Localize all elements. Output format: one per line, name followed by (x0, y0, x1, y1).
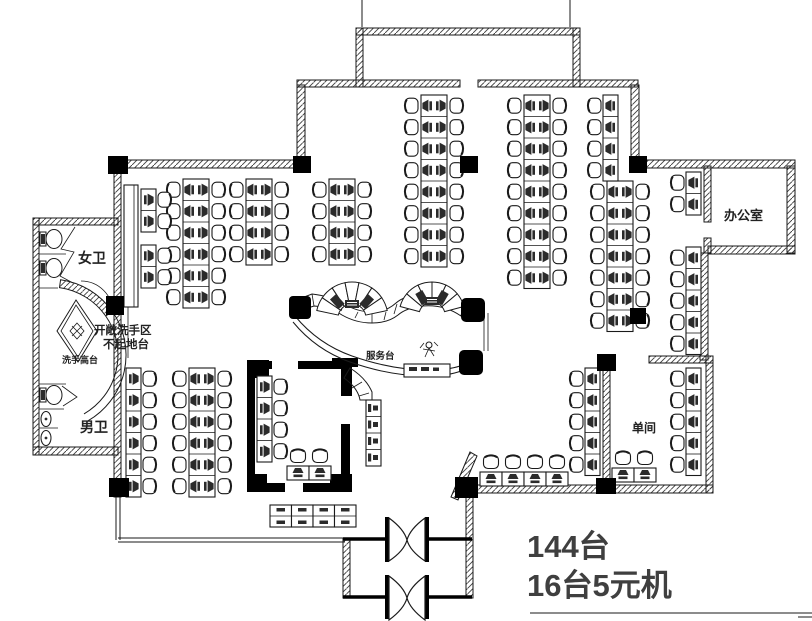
floor-plan-svg: 女卫 男卫 办公室 单间 服务台 开敞洗手区 不起地台 洗手高台 144台 16… (0, 0, 812, 621)
men-toilet-fixtures (39, 384, 77, 446)
label-wash-counter: 洗手高台 (62, 354, 98, 365)
desk-block (270, 505, 356, 527)
machine-count-annotation: 144台 16台5元机 (527, 529, 672, 603)
service-fan-counters (317, 282, 464, 315)
staff-figure (420, 342, 438, 357)
workstation-single-column (141, 245, 171, 288)
workstation-single-column (588, 95, 618, 181)
fan-center-equipment (425, 297, 439, 305)
label-service-desk: 服务台 (366, 350, 395, 362)
fan-center-equipment (345, 300, 359, 308)
datum-lines (362, 0, 812, 617)
label-men-wc: 男卫 (80, 419, 108, 435)
workstation-single-column (570, 368, 600, 476)
workstation-row (612, 451, 656, 482)
annotation-total-machines: 144台 (527, 529, 610, 564)
entrance-vestibule (343, 517, 472, 620)
workstation-row (287, 449, 331, 480)
label-wash-area-1: 开敞洗手区 (94, 323, 152, 337)
workstation-double-column (230, 179, 288, 265)
wash-counter-diamond (57, 300, 97, 362)
label-women-wc: 女卫 (78, 250, 106, 266)
workstation-single-column (126, 368, 156, 497)
label-wash-area-2: 不起地台 (103, 337, 149, 351)
service-desk-station (404, 364, 450, 377)
label-private-room: 单间 (632, 420, 656, 435)
workstation-double-column (508, 95, 566, 289)
workstation-double-column (405, 95, 463, 267)
workstation-double-column (167, 179, 225, 308)
workstation-single-column (671, 368, 701, 476)
women-toilet-fixtures (39, 227, 75, 288)
double-door-top (385, 517, 429, 562)
annotation-five-yuan-machines: 16台5元机 (527, 568, 672, 603)
desk-block (366, 400, 381, 466)
floor-plan-canvas: 女卫 男卫 办公室 单间 服务台 开敞洗手区 不起地台 洗手高台 144台 16… (0, 0, 812, 621)
double-door-bottom (385, 575, 429, 620)
bar-counter (124, 185, 138, 307)
label-office: 办公室 (724, 208, 763, 223)
workstation-double-column (173, 368, 231, 497)
workstation-row (480, 455, 568, 486)
service-counter (291, 282, 488, 400)
workstation-single-column (671, 172, 701, 215)
workstation-double-column (313, 179, 371, 265)
workstation-single-column (671, 247, 701, 355)
workstation-single-column (257, 376, 287, 462)
